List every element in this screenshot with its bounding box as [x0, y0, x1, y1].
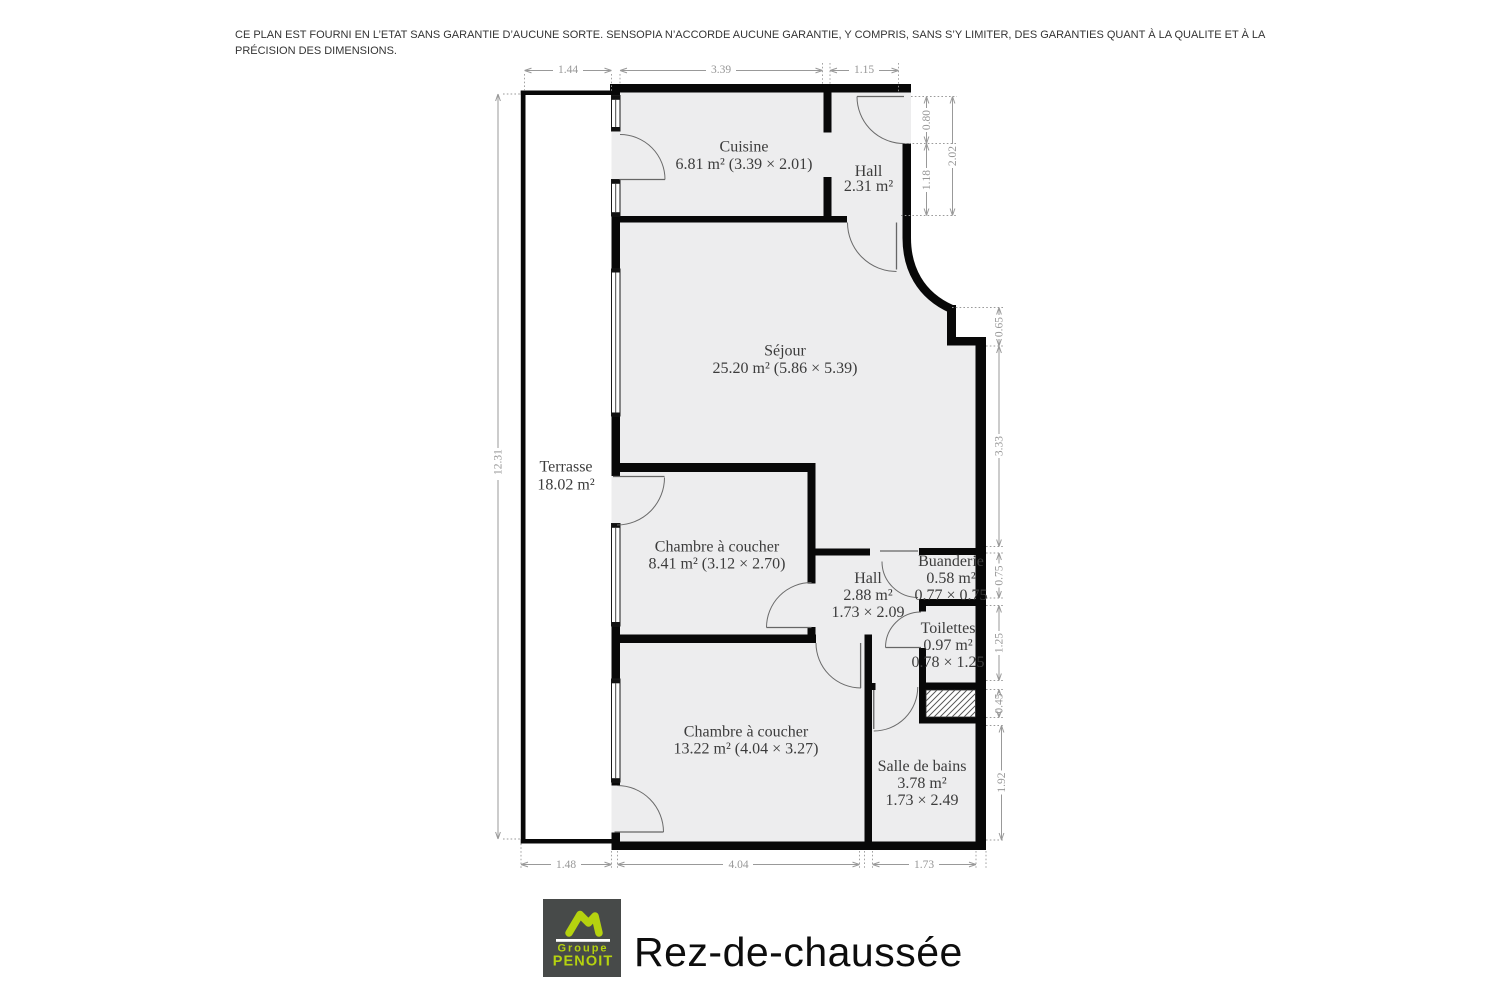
svg-text:1.44: 1.44 [558, 64, 578, 76]
svg-text:0.97 m²: 0.97 m² [923, 637, 972, 654]
svg-text:0.80: 0.80 [921, 110, 933, 130]
svg-text:0.75: 0.75 [994, 565, 1006, 585]
svg-text:18.02 m²: 18.02 m² [537, 477, 594, 494]
svg-text:Chambre à coucher: Chambre à coucher [655, 539, 780, 556]
svg-text:0.65: 0.65 [994, 317, 1006, 337]
svg-text:2.88 m²: 2.88 m² [843, 587, 892, 604]
svg-text:4.04: 4.04 [728, 859, 748, 871]
svg-text:1.25: 1.25 [994, 633, 1006, 653]
svg-text:Chambre à coucher: Chambre à coucher [684, 724, 809, 741]
svg-text:13.22 m² (4.04 × 3.27): 13.22 m² (4.04 × 3.27) [674, 741, 819, 758]
svg-text:0.45: 0.45 [994, 693, 1006, 713]
svg-text:0.58 m²: 0.58 m² [926, 570, 975, 587]
svg-text:1.92: 1.92 [996, 772, 1008, 792]
svg-text:12.31: 12.31 [493, 449, 505, 475]
svg-text:8.41 m² (3.12 × 2.70): 8.41 m² (3.12 × 2.70) [649, 556, 786, 573]
svg-text:Cuisine: Cuisine [720, 139, 769, 156]
svg-text:0.77 × 0.75: 0.77 × 0.75 [914, 587, 987, 604]
svg-text:Hall: Hall [854, 570, 882, 587]
svg-text:2.31 m²: 2.31 m² [844, 178, 893, 195]
svg-text:Terrasse: Terrasse [539, 459, 592, 476]
svg-text:3.39: 3.39 [711, 64, 731, 76]
svg-text:1.15: 1.15 [854, 64, 874, 76]
svg-text:0.78 × 1.25: 0.78 × 1.25 [911, 654, 984, 671]
svg-text:2.02: 2.02 [947, 146, 959, 166]
svg-text:1.18: 1.18 [921, 170, 933, 190]
svg-text:1.73 × 2.09: 1.73 × 2.09 [831, 604, 904, 621]
svg-text:1.48: 1.48 [556, 859, 576, 871]
svg-text:25.20 m² (5.86 × 5.39): 25.20 m² (5.86 × 5.39) [713, 360, 858, 377]
svg-text:6.81 m² (3.39 × 2.01): 6.81 m² (3.39 × 2.01) [676, 156, 813, 173]
svg-text:Salle de bains: Salle de bains [878, 758, 967, 775]
svg-text:Buanderie: Buanderie [918, 553, 984, 570]
svg-text:Toilettes: Toilettes [921, 620, 976, 637]
svg-text:3.78 m²: 3.78 m² [897, 775, 946, 792]
svg-text:1.73: 1.73 [914, 859, 934, 871]
svg-text:Séjour: Séjour [764, 343, 806, 360]
svg-text:3.33: 3.33 [994, 436, 1006, 456]
svg-text:1.73 × 2.49: 1.73 × 2.49 [885, 792, 958, 809]
